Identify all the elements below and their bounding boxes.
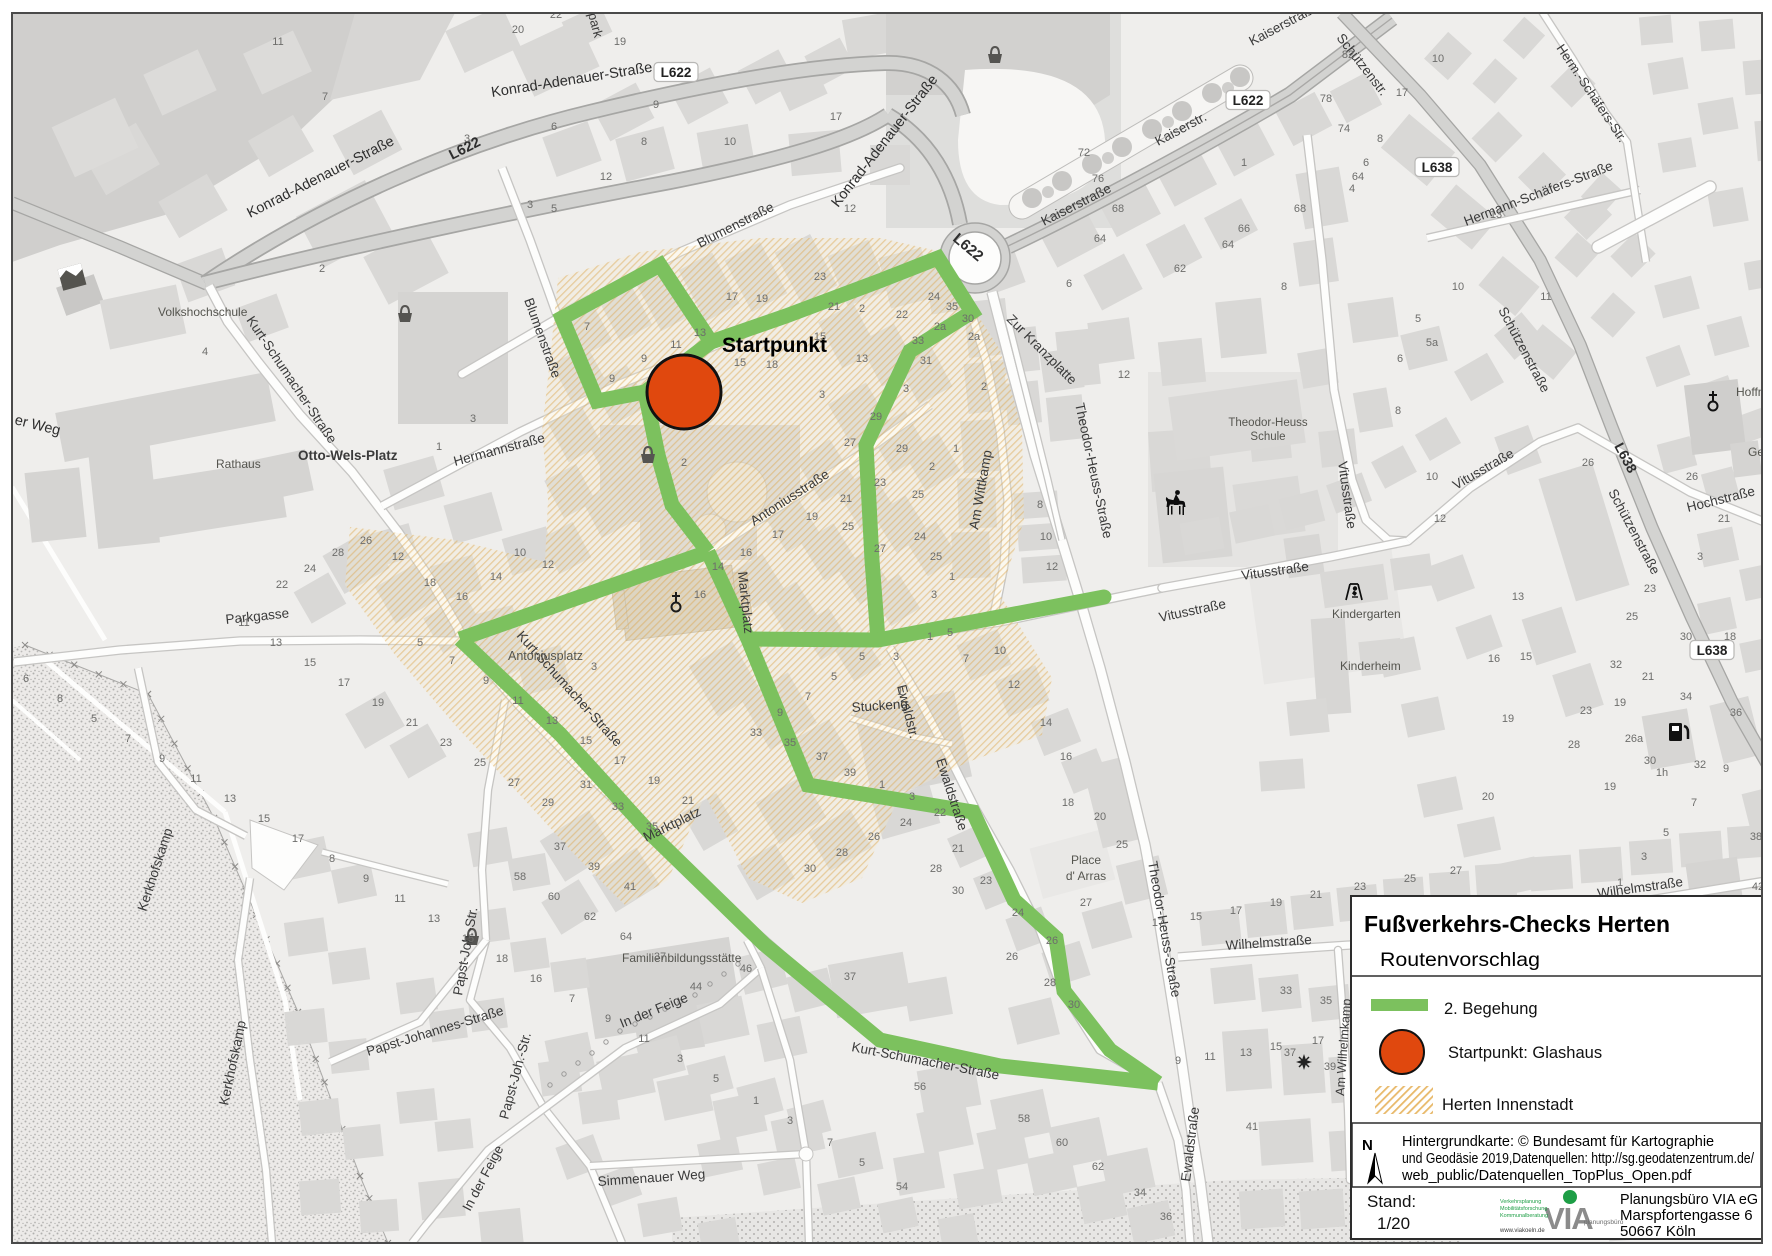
svg-text:21: 21 [952,843,964,855]
svg-text:12: 12 [1008,679,1020,691]
svg-text:21: 21 [1642,671,1654,683]
svg-text:8: 8 [329,853,335,865]
svg-text:25: 25 [930,551,942,563]
svg-text:10: 10 [1040,531,1052,543]
svg-text:35: 35 [946,301,958,313]
svg-text:3: 3 [1697,551,1703,563]
svg-text:Fußverkehrs-Checks Herten: Fußverkehrs-Checks Herten [1364,911,1670,937]
svg-text:24: 24 [1012,907,1024,919]
svg-text:8: 8 [1377,133,1383,145]
svg-text:2. Begehung: 2. Begehung [1444,1000,1538,1018]
svg-text:6: 6 [1363,157,1369,169]
svg-text:23: 23 [440,737,452,749]
svg-text:3: 3 [903,383,909,395]
svg-text:16: 16 [740,547,752,559]
svg-text:7: 7 [805,691,811,703]
svg-text:9: 9 [653,99,659,111]
svg-text:3: 3 [591,661,597,673]
svg-text:4: 4 [202,346,208,358]
svg-text:Rathaus: Rathaus [216,457,261,471]
svg-text:74: 74 [1338,123,1350,135]
svg-text:22: 22 [896,309,908,321]
svg-text:Routenvorschlag: Routenvorschlag [1380,949,1540,971]
svg-text:4: 4 [1349,183,1355,195]
svg-text:30: 30 [962,313,974,325]
svg-text:29: 29 [870,411,882,423]
svg-text:6: 6 [23,673,29,685]
svg-text:20: 20 [1482,791,1494,803]
svg-text:36: 36 [1730,707,1742,719]
svg-text:17: 17 [1396,87,1408,99]
svg-text:Planungsbüro VIA eG: Planungsbüro VIA eG [1620,1191,1758,1208]
svg-text:22: 22 [276,579,288,591]
svg-text:11: 11 [394,893,405,905]
svg-text:3: 3 [677,1053,683,1065]
svg-text:30: 30 [1680,631,1692,643]
svg-text:9: 9 [641,353,647,365]
svg-text:2: 2 [929,461,935,473]
svg-text:33: 33 [612,801,624,813]
svg-text:26: 26 [868,831,880,843]
svg-text:82: 82 [1342,49,1354,61]
svg-text:5: 5 [551,203,557,215]
svg-text:16: 16 [530,973,542,985]
svg-text:5: 5 [1415,313,1421,325]
svg-text:23: 23 [1580,705,1592,717]
svg-text:13: 13 [1512,591,1524,603]
svg-text:17: 17 [1312,1035,1324,1047]
svg-text:3: 3 [893,651,899,663]
svg-text:5: 5 [417,637,423,649]
svg-text:27: 27 [1450,865,1462,877]
svg-text:19: 19 [648,775,660,787]
svg-text:13: 13 [546,715,558,727]
svg-text:11: 11 [670,339,681,351]
svg-text:12: 12 [600,171,612,183]
svg-text:3: 3 [470,413,476,425]
svg-text:13: 13 [270,637,282,649]
svg-text:31: 31 [580,779,592,791]
svg-text:5: 5 [91,713,97,725]
svg-text:2: 2 [319,263,325,275]
svg-text:23: 23 [874,477,886,489]
svg-text:13: 13 [224,793,236,805]
svg-text:64: 64 [1222,239,1234,251]
svg-text:1: 1 [1241,157,1247,169]
svg-text:8: 8 [641,136,647,148]
svg-text:12: 12 [1046,561,1058,573]
svg-text:10: 10 [1452,281,1464,293]
svg-text:19: 19 [1502,713,1514,725]
svg-text:26: 26 [1686,471,1698,483]
svg-text:7: 7 [1691,797,1697,809]
svg-text:28: 28 [836,847,848,859]
svg-text:L622: L622 [661,65,692,80]
svg-text:37: 37 [554,841,566,853]
svg-text:5: 5 [831,671,837,683]
svg-text:64: 64 [1094,233,1106,245]
svg-text:Verkehrsplanung: Verkehrsplanung [1500,1199,1541,1205]
svg-text:24: 24 [900,817,912,829]
svg-text:1: 1 [436,441,442,453]
svg-text:12: 12 [1434,513,1446,525]
svg-text:19: 19 [614,36,626,48]
svg-text:2a: 2a [968,331,981,343]
svg-text:27: 27 [508,777,520,789]
svg-text:54: 54 [896,1181,908,1193]
svg-text:17: 17 [772,529,784,541]
svg-text:66: 66 [1238,223,1250,235]
svg-text:19: 19 [1614,697,1626,709]
svg-text:29: 29 [896,443,908,455]
svg-text:7: 7 [125,733,131,745]
svg-text:15: 15 [1190,911,1202,923]
svg-text:18: 18 [424,577,436,589]
svg-text:31: 31 [920,355,932,367]
svg-text:6: 6 [1066,278,1072,290]
svg-text:5: 5 [859,1157,865,1169]
svg-text:planungsbüro: planungsbüro [1584,1219,1624,1226]
svg-text:13: 13 [428,913,440,925]
svg-text:15: 15 [304,657,316,669]
svg-text:37: 37 [654,951,666,963]
svg-text:11: 11 [1204,1051,1215,1063]
svg-text:Place: Place [1071,853,1101,867]
svg-text:30: 30 [1644,755,1656,767]
svg-text:9: 9 [1723,763,1729,775]
svg-text:17: 17 [1152,917,1164,929]
svg-text:39: 39 [588,861,600,873]
svg-text:62: 62 [1174,263,1186,275]
svg-text:41: 41 [1246,1121,1258,1133]
svg-text:60: 60 [548,891,560,903]
svg-text:27: 27 [844,437,856,449]
svg-text:24: 24 [928,291,940,303]
svg-text:7: 7 [963,653,969,665]
svg-text:25: 25 [474,757,486,769]
svg-text:3: 3 [464,133,470,145]
svg-text:24: 24 [304,563,316,575]
svg-text:19: 19 [372,697,384,709]
svg-text:12: 12 [392,551,404,563]
svg-text:2: 2 [681,457,687,469]
svg-text:37: 37 [816,751,828,763]
svg-text:Hintergrundkarte: © Bundesamt: Hintergrundkarte: © Bundesamt für Kartog… [1402,1134,1714,1150]
svg-text:36: 36 [1160,1211,1172,1223]
svg-text:Marspfortengasse 6: Marspfortengasse 6 [1620,1207,1753,1224]
svg-text:7: 7 [584,321,590,333]
svg-text:23: 23 [1354,881,1366,893]
svg-text:14: 14 [712,561,724,573]
svg-text:20: 20 [512,24,524,36]
svg-text:46: 46 [740,963,752,975]
svg-text:28: 28 [332,547,344,559]
svg-text:26: 26 [1006,951,1018,963]
svg-text:15: 15 [580,735,592,747]
svg-text:3: 3 [931,589,937,601]
svg-text:25: 25 [1404,873,1416,885]
svg-text:11: 11 [512,695,523,707]
svg-text:Familienbildungsstätte: Familienbildungsstätte [622,951,742,965]
svg-text:2: 2 [859,303,865,315]
svg-text:37: 37 [1284,1047,1296,1059]
svg-text:8: 8 [1395,405,1401,417]
svg-text:41: 41 [624,881,636,893]
svg-text:21: 21 [682,795,694,807]
svg-text:19: 19 [756,293,768,305]
svg-text:58: 58 [1018,1113,1030,1125]
svg-text:21: 21 [1310,889,1322,901]
svg-text:8: 8 [57,693,63,705]
svg-text:Kinderheim: Kinderheim [1340,659,1401,673]
svg-text:17: 17 [830,111,842,123]
svg-text:16: 16 [1060,751,1072,763]
svg-text:39: 39 [844,767,856,779]
svg-text:5: 5 [713,1073,719,1085]
svg-text:39: 39 [1324,1061,1336,1073]
svg-text:58: 58 [514,871,526,883]
svg-text:13: 13 [1240,1047,1252,1059]
svg-text:17: 17 [1230,905,1242,917]
svg-text:3: 3 [527,199,533,211]
svg-text:13: 13 [694,327,706,339]
svg-text:9: 9 [609,373,615,385]
svg-text:12: 12 [542,559,554,571]
svg-text:16: 16 [1488,653,1500,665]
svg-text:34: 34 [1680,691,1692,703]
svg-text:11: 11 [1540,291,1551,303]
svg-text:28: 28 [1044,977,1056,989]
svg-text:30: 30 [804,863,816,875]
svg-text:10: 10 [724,136,736,148]
svg-text:13: 13 [1490,209,1502,221]
svg-text:23: 23 [814,271,826,283]
svg-text:18: 18 [766,359,778,371]
svg-text:14: 14 [1040,717,1052,729]
svg-text:11: 11 [272,36,283,48]
svg-text:56: 56 [914,1081,926,1093]
svg-text:5: 5 [859,651,865,663]
svg-text:10: 10 [994,645,1006,657]
svg-text:18: 18 [1062,797,1074,809]
svg-text:8: 8 [1281,281,1287,293]
svg-text:Kindergarten: Kindergarten [1332,607,1401,621]
svg-text:68: 68 [1294,203,1306,215]
svg-text:26a: 26a [1625,733,1644,745]
svg-text:25: 25 [842,521,854,533]
svg-text:24: 24 [914,531,926,543]
svg-text:L622: L622 [1233,93,1264,108]
svg-text:28: 28 [930,863,942,875]
svg-text:3: 3 [787,1115,793,1127]
svg-text:26: 26 [1582,457,1594,469]
svg-text:17: 17 [292,833,304,845]
svg-text:15: 15 [734,357,746,369]
svg-text:15: 15 [1520,651,1532,663]
svg-text:Kommunalberatung: Kommunalberatung [1500,1213,1548,1219]
svg-text:27: 27 [874,543,886,555]
svg-text:2a: 2a [934,321,947,333]
svg-text:5: 5 [1663,827,1669,839]
svg-text:17: 17 [338,677,350,689]
svg-text:www.viakoeln.de: www.viakoeln.de [1499,1228,1545,1234]
svg-text:23: 23 [980,875,992,887]
svg-text:5a: 5a [1426,337,1439,349]
svg-text:21: 21 [828,301,840,313]
svg-text:33: 33 [912,335,924,347]
svg-text:12: 12 [844,203,856,215]
svg-text:17: 17 [614,755,626,767]
svg-text:Schule: Schule [1250,431,1285,443]
svg-text:3: 3 [1641,851,1647,863]
svg-text:11: 11 [238,617,249,629]
svg-text:1: 1 [1617,877,1623,889]
svg-text:33: 33 [750,727,762,739]
svg-text:18: 18 [1724,631,1736,643]
svg-text:60: 60 [1056,1137,1068,1149]
svg-text:1/20: 1/20 [1377,1214,1410,1233]
svg-text:21: 21 [1718,513,1730,525]
svg-text:9: 9 [777,707,783,719]
svg-text:15: 15 [814,331,826,343]
svg-text:78: 78 [1320,93,1332,105]
svg-text:64: 64 [620,931,632,943]
svg-text:29: 29 [542,797,554,809]
svg-text:25: 25 [912,489,924,501]
svg-text:Otto-Wels-Platz: Otto-Wels-Platz [298,448,398,463]
svg-text:5: 5 [947,627,953,639]
svg-text:11: 11 [638,1033,649,1045]
svg-text:Theodor-Heuss: Theodor-Heuss [1228,417,1308,429]
svg-text:28: 28 [1568,739,1580,751]
svg-text:23: 23 [1644,583,1656,595]
svg-text:19: 19 [1270,897,1282,909]
svg-text:35: 35 [784,737,796,749]
svg-text:27: 27 [1080,897,1092,909]
svg-text:15: 15 [462,933,474,945]
svg-text:25: 25 [1626,611,1638,623]
svg-text:9: 9 [483,675,489,687]
svg-text:44: 44 [690,981,702,993]
svg-text:15: 15 [1270,1041,1282,1053]
svg-text:Stand:: Stand: [1367,1192,1416,1211]
svg-text:9: 9 [605,1013,611,1025]
svg-text:7: 7 [322,91,328,103]
svg-text:1h: 1h [1656,767,1668,779]
svg-text:10: 10 [1426,471,1438,483]
svg-text:38: 38 [1750,831,1762,843]
svg-text:16: 16 [694,589,706,601]
svg-text:10: 10 [514,547,526,559]
svg-text:9: 9 [363,873,369,885]
svg-text:Herten Innenstadt: Herten Innenstadt [1442,1096,1574,1114]
svg-text:35: 35 [646,821,658,833]
svg-text:1: 1 [879,779,885,791]
svg-text:Antoniusplatz: Antoniusplatz [508,649,583,663]
svg-text:d' Arras: d' Arras [1066,869,1106,883]
svg-text:6: 6 [1397,353,1403,365]
svg-text:76: 76 [1092,173,1104,185]
svg-text:18: 18 [496,953,508,965]
svg-text:7: 7 [569,993,575,1005]
svg-text:19: 19 [1604,781,1616,793]
svg-text:68: 68 [1112,203,1124,215]
svg-text:12: 12 [1118,369,1130,381]
svg-text:32: 32 [1694,759,1706,771]
svg-text:3: 3 [909,791,915,803]
svg-text:34: 34 [1134,1187,1146,1199]
svg-text:22: 22 [934,807,946,819]
svg-text:21: 21 [840,493,852,505]
svg-text:3: 3 [819,389,825,401]
svg-text:2: 2 [981,381,987,393]
svg-text:20: 20 [1094,811,1106,823]
svg-text:37: 37 [844,971,856,983]
svg-text:N: N [1362,1137,1373,1154]
svg-text:7: 7 [449,655,455,667]
svg-text:50667 Köln: 50667 Köln [1620,1223,1696,1240]
svg-text:15: 15 [258,813,270,825]
svg-text:L638: L638 [1422,160,1453,175]
svg-text:und Geodäsie 2019,Datenquellen: und Geodäsie 2019,Datenquellen: http://s… [1402,1151,1755,1167]
svg-text:33: 33 [1280,985,1292,997]
svg-text:11: 11 [190,773,201,785]
svg-text:1: 1 [897,686,903,698]
svg-text:Startpunkt: Startpunkt [722,334,827,357]
svg-text:26: 26 [1046,935,1058,947]
svg-text:26: 26 [360,535,372,547]
svg-text:1: 1 [927,631,933,643]
svg-text:21: 21 [406,717,418,729]
svg-text:16: 16 [456,591,468,603]
svg-text:1: 1 [949,571,955,583]
svg-text:62: 62 [584,911,596,923]
svg-text:1: 1 [953,443,959,455]
svg-text:Startpunkt: Glashaus: Startpunkt: Glashaus [1448,1044,1602,1062]
svg-text:8: 8 [1037,499,1043,511]
svg-text:9: 9 [159,753,165,765]
svg-text:64: 64 [1352,171,1364,183]
svg-text:19: 19 [806,511,818,523]
svg-text:9: 9 [1175,1055,1181,1067]
svg-text:Volkshochschule: Volkshochschule [158,305,248,319]
svg-text:25: 25 [1116,839,1128,851]
svg-text:L638: L638 [1697,643,1728,658]
svg-text:62: 62 [1092,1161,1104,1173]
svg-text:13: 13 [856,353,868,365]
svg-text:30: 30 [952,885,964,897]
svg-text:6: 6 [551,121,557,133]
svg-text:14: 14 [490,571,502,583]
svg-text:17: 17 [726,291,738,303]
svg-text:web_public/Datenquellen_TopPlu: web_public/Datenquellen_TopPlus_Open.pdf [1401,1168,1692,1184]
svg-text:7: 7 [827,1137,833,1149]
svg-text:30: 30 [1068,999,1080,1011]
svg-text:32: 32 [1610,659,1622,671]
svg-text:10: 10 [1432,53,1444,65]
svg-text:Mobilitätsforschung: Mobilitätsforschung [1500,1206,1547,1212]
svg-text:35: 35 [1320,995,1332,1007]
svg-text:1: 1 [753,1095,759,1107]
svg-text:72: 72 [1078,147,1090,159]
